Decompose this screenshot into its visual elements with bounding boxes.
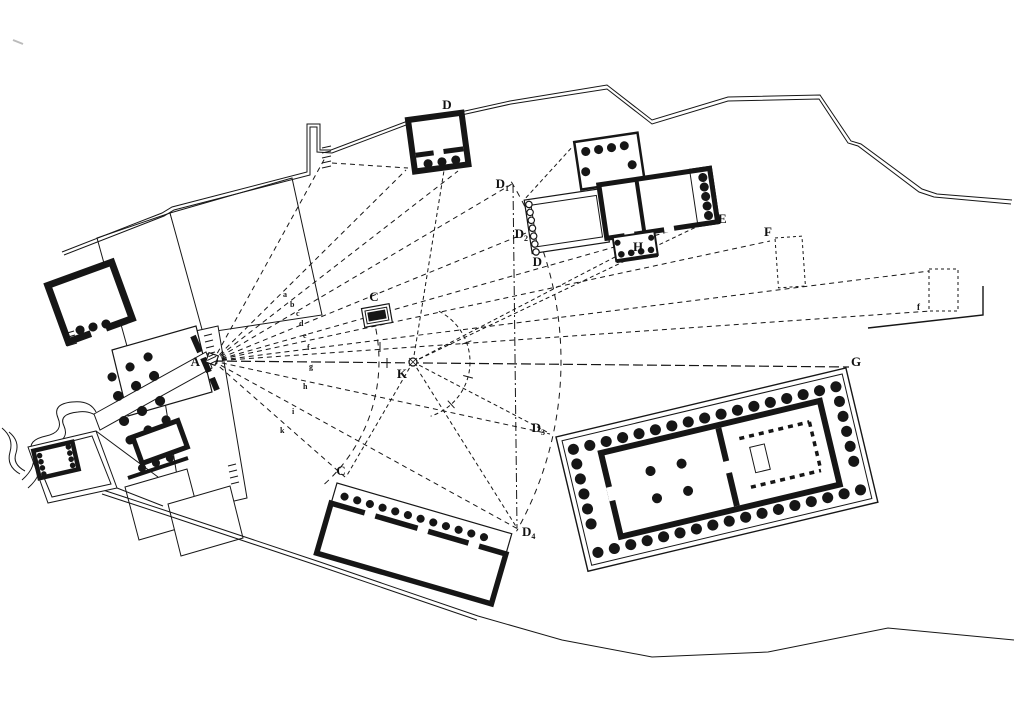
site-plan-canvas: A C D D1 D2 D D3 D4 E H F f G K C a b c … xyxy=(0,0,1033,711)
label-C-altar: C xyxy=(369,289,378,304)
ray-label-g: g xyxy=(309,362,313,371)
label-G: G xyxy=(851,354,861,369)
ray-label-e: e xyxy=(303,331,307,340)
label-D-arc: D xyxy=(533,254,542,269)
north-wall-stairs-hatch xyxy=(322,146,331,168)
east-wall-fragment xyxy=(868,286,983,328)
viewpoint-K-marker xyxy=(409,358,417,366)
axis-tick-marks xyxy=(380,342,387,368)
nike-temple xyxy=(33,442,78,478)
east-terrace-end xyxy=(929,269,958,311)
ray-label-i: i xyxy=(292,407,295,416)
acropolis-site-plan: A C D D1 D2 D D3 D4 E H F f G K C a b c … xyxy=(0,0,1033,711)
ray-label-f: f xyxy=(307,343,310,352)
label-D4: D4 xyxy=(522,524,535,541)
northwest-building xyxy=(408,113,468,172)
label-D2: D2 xyxy=(515,226,528,243)
ray-label-k: k xyxy=(280,426,285,435)
altar-c xyxy=(361,304,392,328)
ray-label-c: c xyxy=(296,309,300,318)
label-E: E xyxy=(718,211,727,226)
ray-label-a: a xyxy=(283,290,287,299)
chalkotheke xyxy=(317,483,512,604)
label-F: F xyxy=(764,224,772,239)
wall-to-building-tie xyxy=(332,163,408,168)
inner-arc xyxy=(324,318,379,484)
label-D3: D3 xyxy=(532,420,545,437)
ray-label-h: h xyxy=(303,382,308,391)
label-A: A xyxy=(191,354,201,369)
south-wall-outline xyxy=(102,490,1014,657)
monument-F xyxy=(775,236,805,288)
label-D-top: D xyxy=(442,97,451,112)
label-K: K xyxy=(397,366,408,381)
erechtheion xyxy=(517,123,723,274)
label-C-chalkotheke: C xyxy=(336,463,345,478)
label-H: H xyxy=(633,239,643,254)
label-f-end: f xyxy=(917,302,921,312)
ray-label-d: d xyxy=(299,319,304,328)
ray-label-b: b xyxy=(290,300,295,309)
topleft-contour-stub xyxy=(13,40,23,44)
parthenon xyxy=(556,368,878,571)
label-D1: D1 xyxy=(496,176,509,193)
